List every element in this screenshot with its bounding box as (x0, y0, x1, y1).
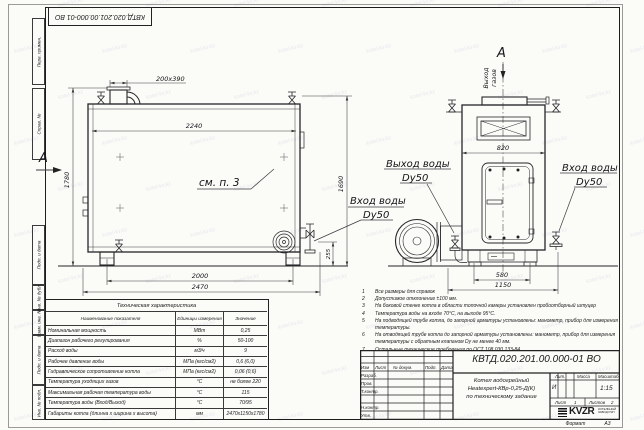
title-designation: КВТД.020.201.00.000-01 ВО (455, 354, 618, 365)
kvzr-logo-text: KVZR (569, 406, 594, 417)
table-cell: 0,25 (224, 326, 267, 336)
burner-flange (273, 231, 295, 253)
table-cell: мм (176, 409, 224, 419)
row-utv: Утв. (361, 413, 371, 418)
table-cell: МВт (176, 326, 224, 336)
table-cell: Диапазон рабочего регулирования (46, 336, 176, 346)
row-nkontr: Н.контр. (361, 405, 380, 410)
table-cell: МПа (кгс/см2) (176, 357, 224, 367)
table-title: Техническая характеристика (46, 300, 267, 312)
gas-outlet-label-2: газов (491, 69, 498, 87)
door-handle (487, 200, 502, 204)
title-block: КВТД.020.201.00.000-01 ВО Котел водогрей… (360, 350, 620, 420)
top-slab (482, 97, 527, 105)
table-cell: 0,6 (6,0) (224, 357, 267, 367)
table-cell: °С (176, 388, 224, 398)
sheets-label: Листов (589, 400, 605, 405)
inlet-label: Вход воды (562, 163, 618, 174)
valve-drain (115, 240, 123, 252)
col-header-name: Наименование показателя (46, 312, 176, 326)
table-cell: 115 (224, 388, 267, 398)
view-arrow-letter-left: А (38, 151, 48, 166)
inlet-dn-left-view: Dy50 (363, 210, 389, 221)
sheet-value: 1 (574, 400, 576, 405)
note-item: 1Все размеры для справок (362, 289, 620, 296)
dim-1690: 1690 (337, 176, 345, 193)
col-header-units: Единицы измерения (176, 312, 224, 326)
table-cell: 50-100 (224, 336, 267, 346)
scale-value: 1:15 (600, 385, 613, 392)
table-cell: Номинальная мощность (46, 326, 176, 336)
table-cell: °С (176, 378, 224, 388)
row-prov: Пров. (361, 381, 373, 386)
col-izm: Изм (361, 365, 369, 370)
scale-label: Масштаб (598, 374, 619, 379)
top-hatch (477, 117, 530, 140)
table-cell: не более 220 (224, 378, 267, 388)
note-item: 3На боковой стенке котла в области топоч… (362, 303, 620, 310)
chimney-duct (107, 87, 140, 104)
row-razrab: Разраб. (361, 373, 377, 378)
inlet-piping (300, 224, 315, 253)
table-cell: м3/ч (176, 347, 224, 357)
dim-2240: 2240 (186, 122, 203, 130)
lit-label: Лит. (555, 374, 565, 379)
dim-580: 580 (496, 271, 508, 279)
col-list: Лист (375, 365, 386, 370)
table-cell: Габариты котла (длинна х ширина х высота… (46, 409, 176, 419)
table-cell: °С (176, 398, 224, 408)
mass-label: Масса (577, 374, 590, 379)
inlet-dn: Dy50 (576, 177, 602, 188)
note-item: 4Температура воды на входе 70°С, на выхо… (362, 311, 620, 318)
dim-2470: 2470 (192, 283, 209, 291)
table-cell: Гидравлическое сопротивление котла (46, 367, 176, 377)
kvzr-logo-subtext: КОТЕЛЬНЫЙ ЗАВОД РЭП (598, 408, 616, 415)
dim-1150: 1150 (495, 281, 512, 289)
note-item: 6На отводящей трубе котла до запорной ар… (362, 332, 620, 346)
table-cell: % (176, 336, 224, 346)
base-frame (468, 250, 537, 266)
table-cell: 2470х1150х1780 (224, 409, 267, 419)
valve-top-right (288, 92, 296, 104)
outlet-label: Выход воды (386, 159, 450, 170)
table-cell: 9 (224, 347, 267, 357)
technical-notes: 1Все размеры для справок 2Допустимое отк… (362, 289, 620, 354)
gas-outlet-label-1: Выход (483, 68, 490, 89)
drawing-sheet: kotel-kv.kzkotel-kv.kzkotel-kv.kzkotel-k… (0, 0, 644, 430)
table-cell: Температура воды (Вход/Выход) (46, 398, 176, 408)
inlet-label-left-view: Вход воды (350, 196, 406, 207)
lit-value: И (552, 385, 556, 391)
table-cell: Рабочее давление воды (46, 357, 176, 367)
format-value: А3 (604, 421, 610, 427)
view-letter-a: А (496, 46, 506, 61)
valve-water-outlet (450, 236, 467, 263)
furnace-door (482, 163, 534, 243)
dim-820: 820 (497, 144, 509, 152)
dim-duct: 200х390 (156, 75, 185, 83)
dim-1780: 1780 (63, 172, 71, 189)
outlet-dn: Dy50 (402, 173, 428, 184)
sheet-label: Лист (555, 400, 566, 405)
table-cell: Максимальная рабочая температура воды (46, 388, 176, 398)
table-cell: 70/95 (224, 398, 267, 408)
col-header-value: Значение (224, 312, 267, 326)
table-cell: 0,06 (0,6) (224, 367, 267, 377)
tech-characteristics-table: Техническая характеристика Наименование … (45, 299, 269, 420)
table-cell: МПа (кгс/см2) (176, 367, 224, 377)
dim-255: 255 (326, 248, 332, 259)
table-cell: Расход воды (46, 347, 176, 357)
see-note-label: см. п. 3 (199, 177, 240, 189)
valve-top-left (97, 92, 105, 104)
col-podp: Подп. (425, 365, 437, 370)
blower-fan (396, 220, 463, 267)
valve-front-top-left (448, 100, 456, 112)
valve-front-top-right (552, 100, 560, 112)
format-note: Формат А3 (556, 421, 620, 427)
dim-2000: 2000 (192, 272, 209, 280)
col-data: Дата (441, 365, 453, 370)
valve-water-inlet (550, 232, 562, 250)
row-tkontr: Т.контр. (361, 389, 379, 394)
kvzr-logo-icon (558, 408, 567, 417)
col-doc: № докум. (393, 365, 412, 370)
note-item: 5На подводящей трубе котла, до запорной … (362, 318, 620, 332)
product-name: Котел водогрейный Heatexpert-КВр-0,25-Д(… (454, 377, 549, 401)
sheets-value: 2 (611, 400, 613, 405)
table-cell: Температура уходящих газов (46, 378, 176, 388)
